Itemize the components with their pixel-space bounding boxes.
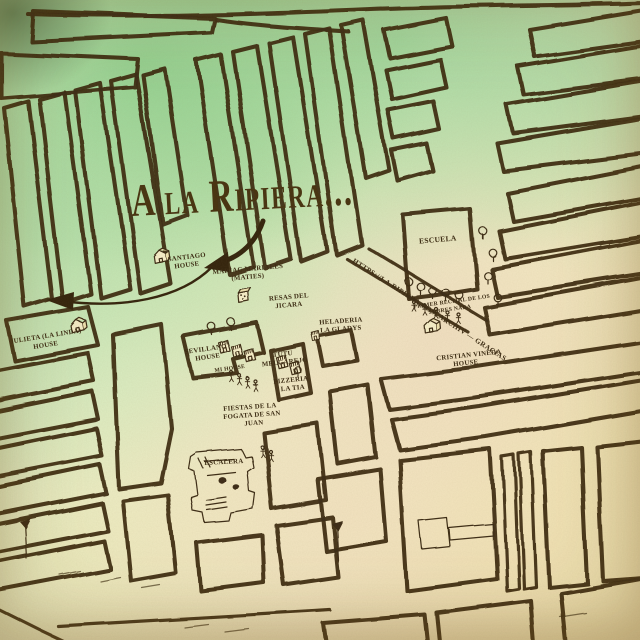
paper-grain-overlay (0, 0, 640, 640)
hand-drawn-map: A la Ripiera... Julieta (La Linda) House… (0, 0, 640, 640)
map-canvas: A la Ripiera... Julieta (La Linda) House… (0, 0, 640, 640)
